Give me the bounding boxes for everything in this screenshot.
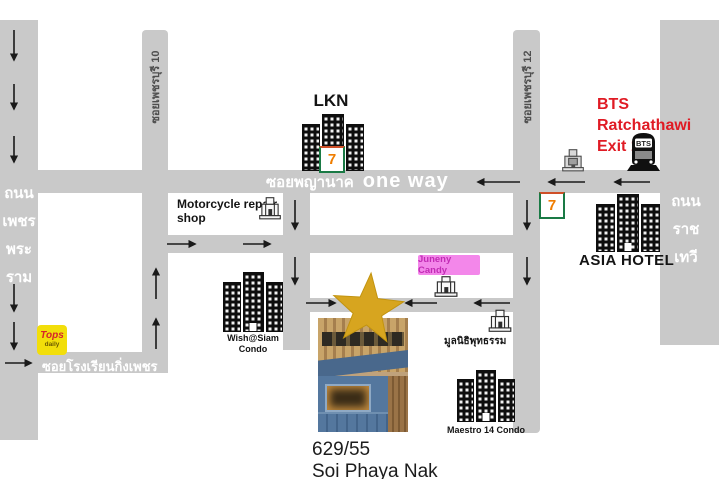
wish-siam-label: Wish@Siam Condo [219, 333, 287, 355]
soi-phaya-nak-text: ซอยพญานาค [266, 170, 354, 194]
road-soi-to-house [283, 193, 310, 350]
tower-icon [476, 370, 496, 422]
tower-icon [498, 379, 515, 422]
seven-eleven-icon: 7 [319, 146, 345, 173]
daily-text: daily [45, 341, 60, 349]
destination-star-icon [326, 266, 411, 351]
wish-siam-line2: Condo [219, 344, 287, 355]
juneny-candy-text: Juneny Candy [418, 254, 480, 276]
destination-address: 629/55 [312, 439, 438, 461]
tower-icon [243, 272, 264, 332]
destination-caption: 629/55 Soi Phaya Nak [312, 439, 438, 479]
tower-icon [302, 124, 320, 171]
tower-icon [457, 379, 474, 422]
buddhist-foundation-label: มูลนิธิพุทธรรม [444, 334, 506, 349]
road-label-soi-phetchaburi-10: ซอยเพชรบุรี 10 [146, 50, 164, 123]
maestro-label: Maestro 14 Condo [445, 425, 527, 435]
tower-icon [617, 194, 640, 252]
seven-glyph: 7 [328, 152, 336, 167]
tower-icon [596, 204, 615, 252]
map-canvas: ถนน เพชร พระ ราม ถนน ราช เทวี ซอยเพชรบุร… [0, 0, 719, 479]
asia-hotel-label: ASIA HOTEL [579, 252, 674, 269]
road-label-line: ถนน [0, 180, 38, 208]
bts-train-icon: BTS [625, 130, 662, 174]
road-label-line: ถนน [660, 188, 712, 216]
road-label-line: ราม [0, 264, 38, 292]
road-label-line: พระ [0, 236, 38, 264]
road-label-line: เพชร [0, 208, 38, 236]
station-entrance-icon [560, 146, 586, 174]
tower-icon [223, 282, 241, 332]
juneny-candy-icon [432, 275, 460, 298]
photo-gate [318, 412, 388, 432]
road-middle-cross [142, 235, 540, 253]
wish-siam-building-icon [223, 274, 283, 332]
tower-icon [266, 282, 284, 332]
road-label-soi-rongrian: ซอยโรงเรียนกิ่งเพชร [42, 356, 158, 377]
road-label-phet-phra-ram: ถนน เพชร พระ ราม [0, 180, 38, 292]
destination-street: Soi Phaya Nak [312, 461, 438, 479]
tower-icon [641, 204, 660, 252]
lkn-label: LKN [301, 91, 361, 111]
seven-eleven-icon: 7 [539, 192, 565, 219]
road-label-line: ราช [660, 216, 712, 244]
road-label-soi-phaya-nak: ซอยพญานาค one way [266, 170, 449, 193]
wish-siam-line1: Wish@Siam [219, 333, 287, 344]
tops-daily-logo: Tops daily [37, 325, 67, 355]
tower-icon [346, 124, 364, 171]
photo-shop-window [325, 384, 371, 412]
maestro-building-icon [457, 372, 515, 422]
photo-wood-door [388, 376, 408, 432]
one-way-text: one way [363, 170, 449, 193]
tops-text: Tops [40, 331, 64, 341]
motorcycle-shop-icon [257, 195, 283, 221]
road-label-soi-phetchaburi-12: ซอยเพชรบุรี 12 [518, 50, 536, 123]
juneny-candy-label: Juneny Candy [418, 255, 480, 275]
bts-icon-text: BTS [636, 139, 651, 148]
asia-hotel-building-icon [596, 196, 660, 252]
buddhist-foundation-icon [486, 308, 514, 333]
seven-glyph: 7 [548, 198, 556, 213]
